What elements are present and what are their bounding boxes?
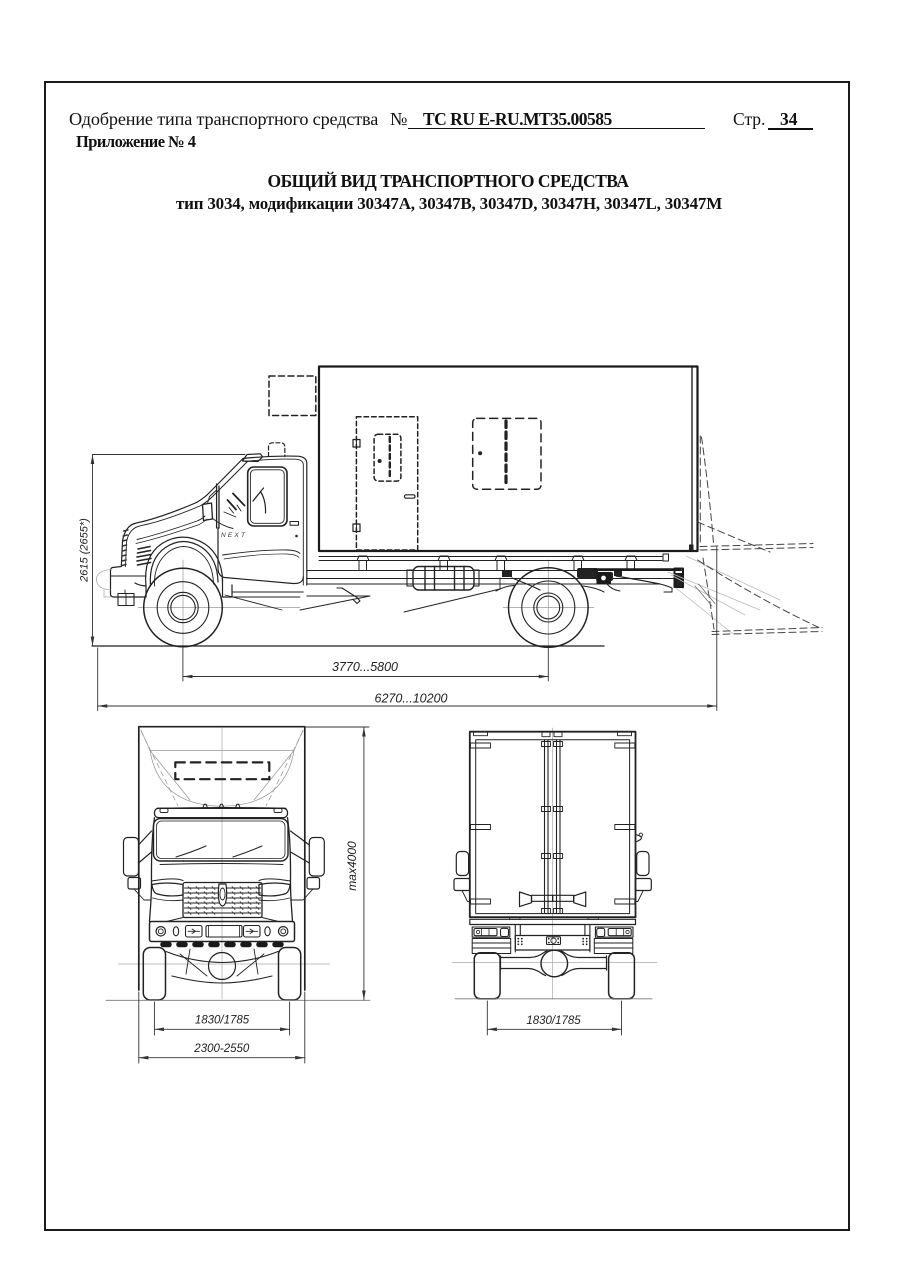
svg-text:NEXT: NEXT	[221, 532, 247, 539]
svg-text:2300-2550: 2300-2550	[193, 1043, 250, 1055]
svg-text:6270...10200: 6270...10200	[375, 692, 448, 706]
svg-text:max4000: max4000	[345, 841, 359, 891]
svg-text:1830/1785: 1830/1785	[195, 1015, 250, 1027]
svg-text:2615 (2655*): 2615 (2655*)	[79, 518, 91, 583]
svg-text:1830/1785: 1830/1785	[526, 1015, 581, 1027]
svg-text:3770...5800: 3770...5800	[332, 660, 398, 674]
